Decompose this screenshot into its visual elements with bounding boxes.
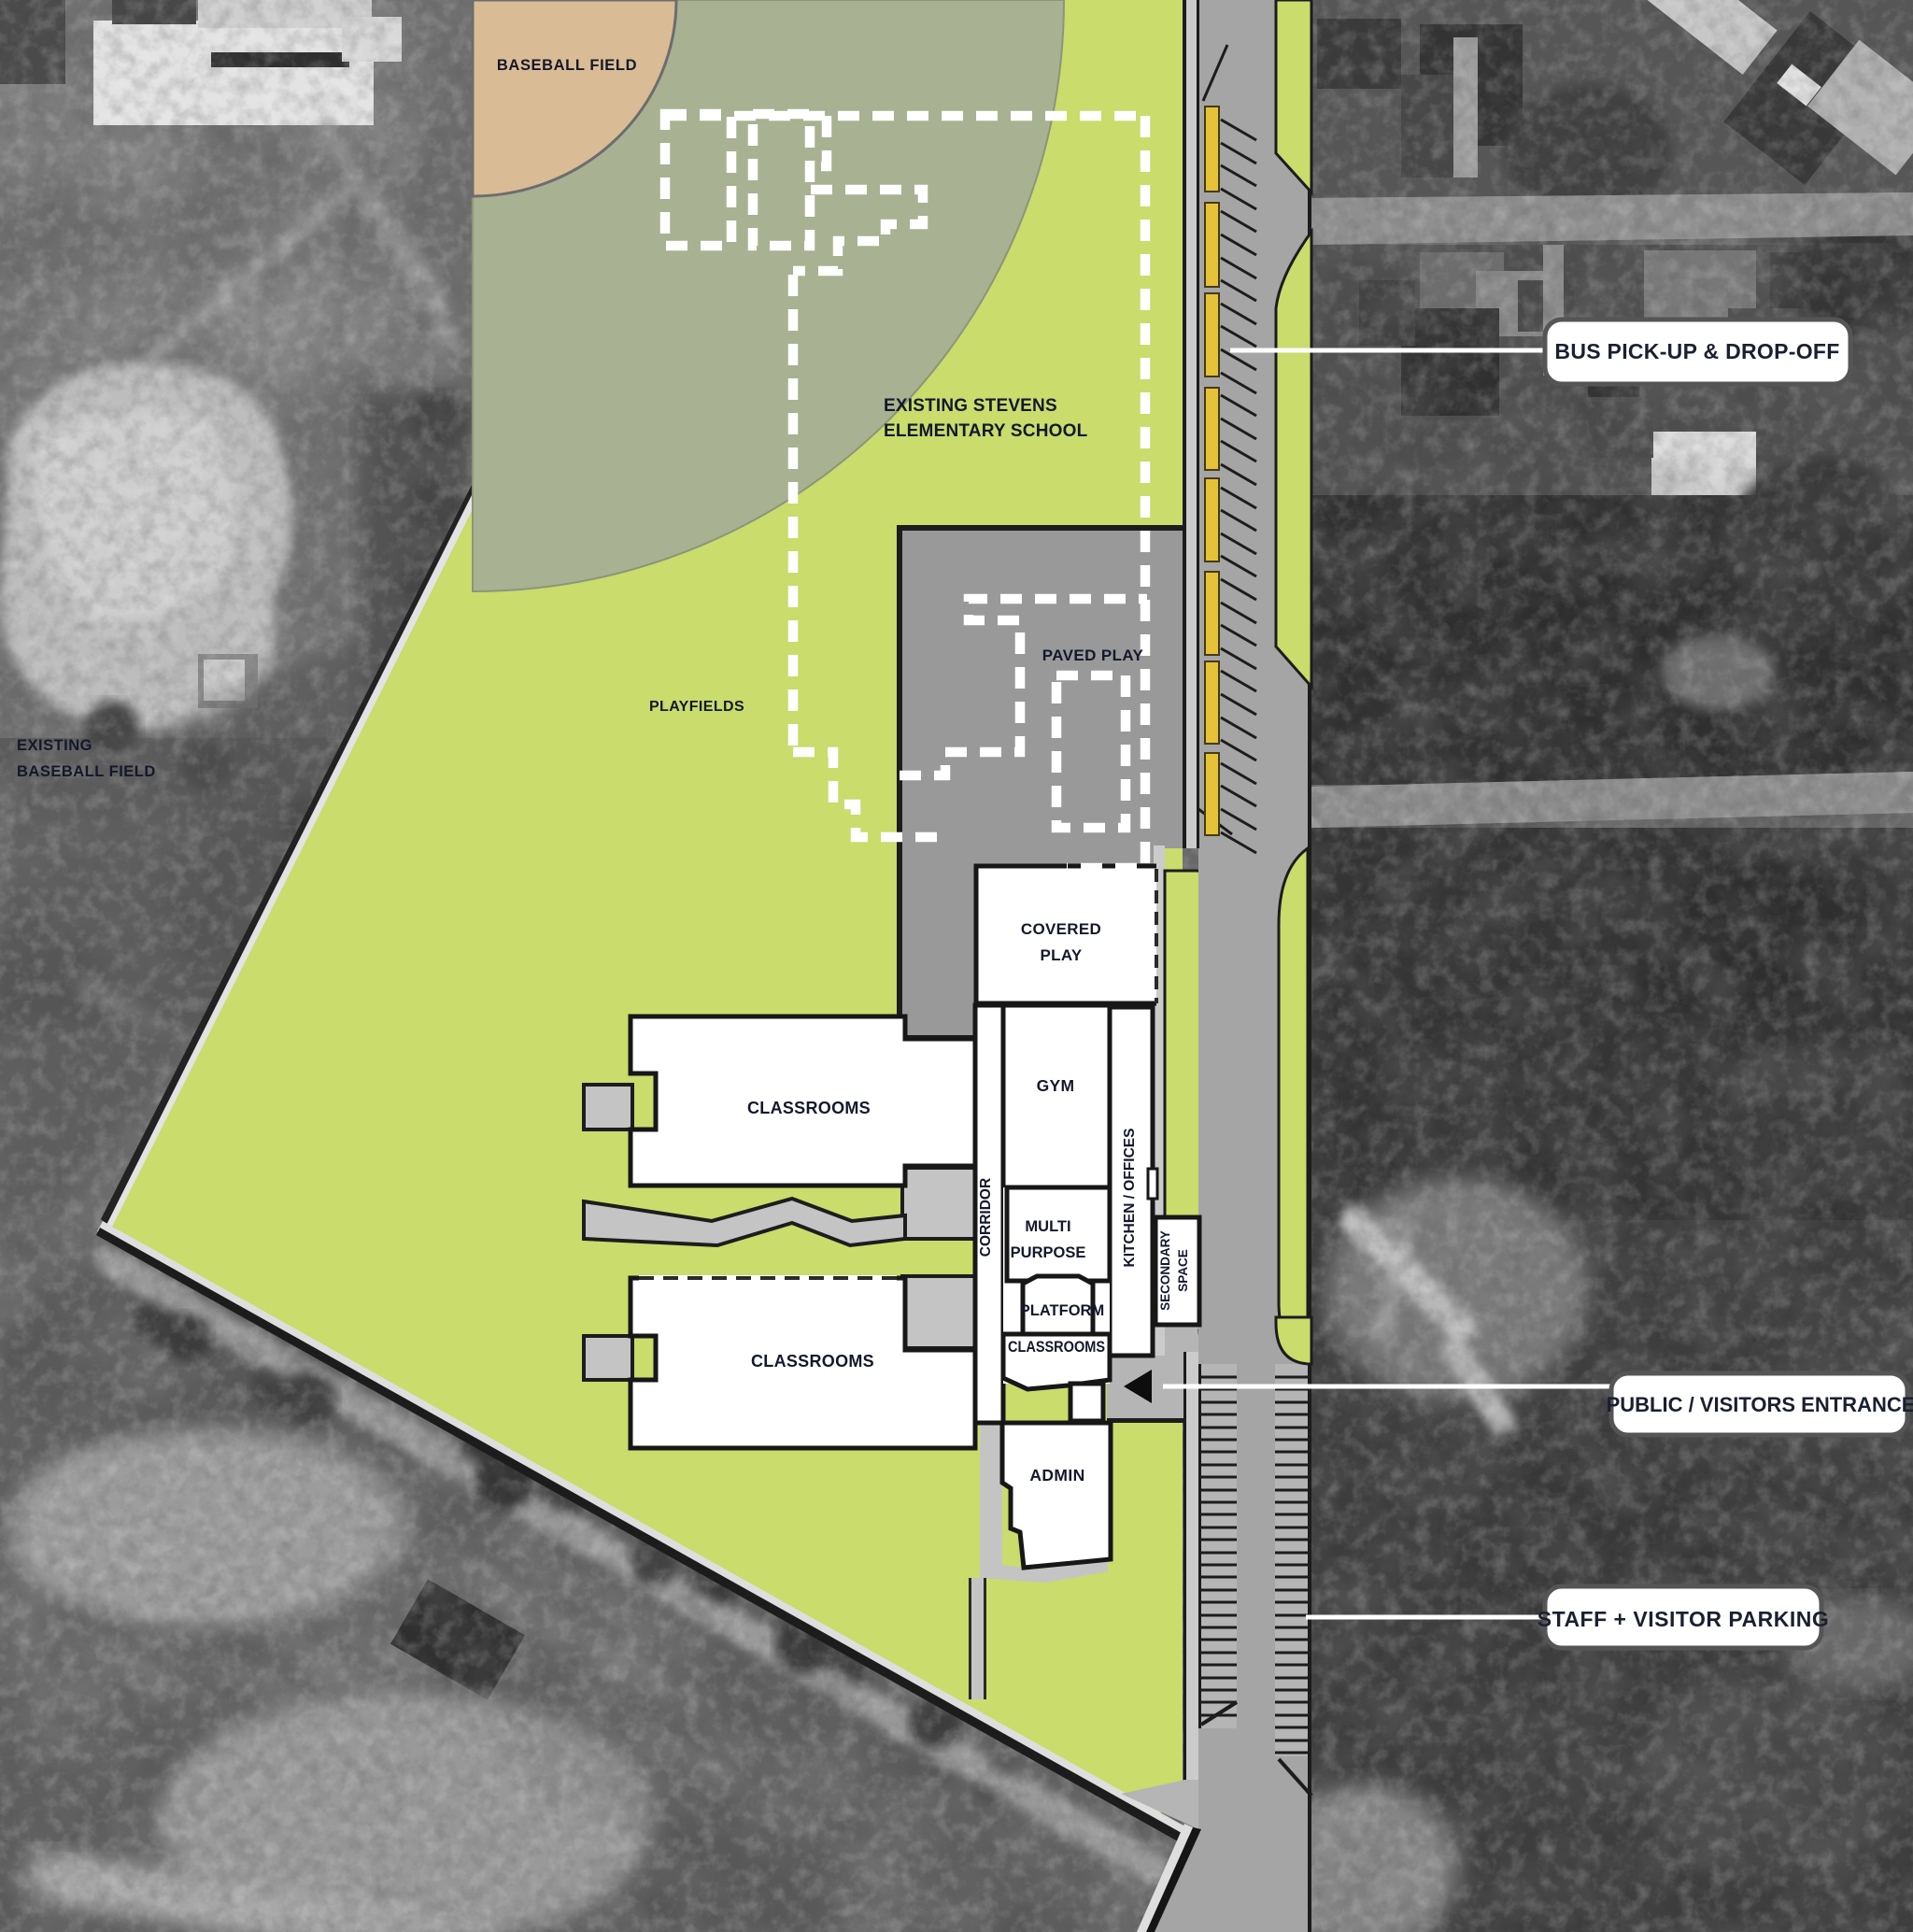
svg-text:BASEBALL FIELD: BASEBALL FIELD <box>17 763 156 780</box>
svg-text:STAFF + VISITOR PARKING: STAFF + VISITOR PARKING <box>1537 1607 1829 1631</box>
svg-text:CLASSROOMS: CLASSROOMS <box>751 1352 874 1371</box>
svg-text:BUS PICK-UP & DROP-OFF: BUS PICK-UP & DROP-OFF <box>1554 339 1839 363</box>
svg-text:PLAY: PLAY <box>1041 946 1083 964</box>
svg-text:PAVED PLAY: PAVED PLAY <box>1042 646 1144 664</box>
svg-text:SECONDARY: SECONDARY <box>1158 1230 1172 1311</box>
svg-text:MULTI: MULTI <box>1025 1218 1070 1235</box>
svg-text:CORRIDOR: CORRIDOR <box>978 1178 994 1257</box>
svg-text:ADMIN: ADMIN <box>1029 1466 1084 1485</box>
svg-text:BASEBALL FIELD: BASEBALL FIELD <box>497 57 637 74</box>
svg-text:COVERED: COVERED <box>1021 920 1101 938</box>
svg-text:CLASSROOMS: CLASSROOMS <box>1008 1339 1105 1356</box>
svg-text:KITCHEN / OFFICES: KITCHEN / OFFICES <box>1122 1129 1138 1268</box>
svg-text:SPACE: SPACE <box>1176 1249 1190 1292</box>
svg-text:EXISTING: EXISTING <box>17 737 92 754</box>
svg-text:CLASSROOMS: CLASSROOMS <box>747 1099 871 1117</box>
svg-text:PLAYFIELDS: PLAYFIELDS <box>649 699 744 715</box>
svg-text:PUBLIC / VISITORS ENTRANCE: PUBLIC / VISITORS ENTRANCE <box>1607 1393 1913 1416</box>
svg-text:EXISTING STEVENS: EXISTING STEVENS <box>884 396 1057 416</box>
svg-text:PLATFORM: PLATFORM <box>1020 1302 1104 1319</box>
svg-text:GYM: GYM <box>1037 1076 1075 1095</box>
svg-text:PURPOSE: PURPOSE <box>1011 1244 1086 1261</box>
svg-text:ELEMENTARY SCHOOL: ELEMENTARY SCHOOL <box>884 421 1088 441</box>
